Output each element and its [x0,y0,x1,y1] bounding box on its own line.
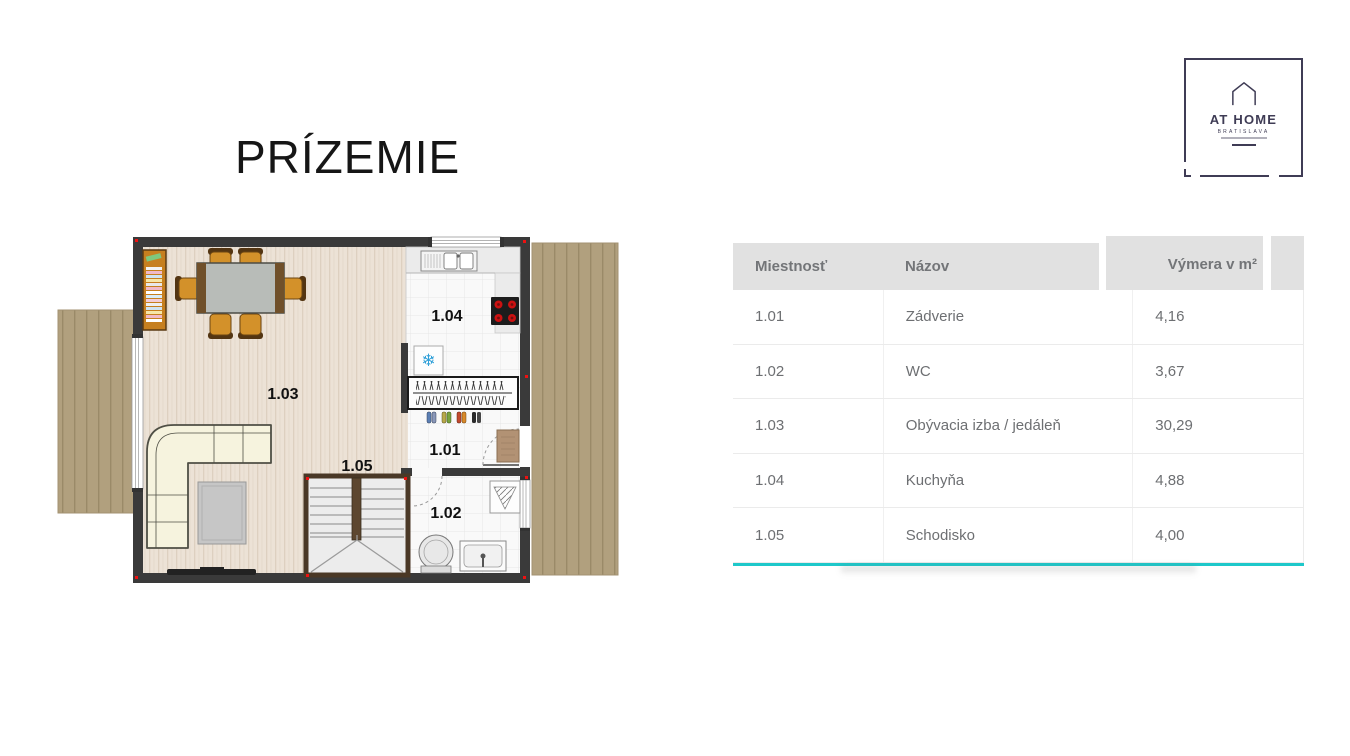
room-id-cell: 1.04 [733,472,883,489]
room-area-cell: 3,67 [1132,345,1303,399]
terrace-left [58,310,135,513]
snowflake-icon: ❄ [421,351,435,370]
doormat [497,430,519,462]
column-header-area: Výmera v m² [1106,236,1263,290]
stove [491,297,519,325]
header-block-left: Miestnosť Názov [733,243,1099,290]
logo: AT HOME BRATISLAVA [1184,58,1303,177]
room-name-cell: Obývacia izba / jedáleň [883,399,1133,453]
logo-border-gap [1269,175,1279,177]
interior-wall [401,343,408,413]
window-left [132,334,143,492]
dining-table [197,263,284,313]
logo-name: AT HOME [1186,112,1301,127]
room-id-cell: 1.01 [733,308,883,325]
table-row: 1.02 WC 3,67 [733,345,1303,400]
table-row: 1.03 Obývacia izba / jedáleň 30,29 [733,399,1303,454]
wc-corner-unit [490,481,520,513]
table-row: 1.04 Kuchyňa 4,88 [733,454,1303,509]
room-area-cell: 4,00 [1132,508,1303,562]
room-id-cell: 1.05 [733,527,883,544]
toilet [419,535,453,573]
wc-door-opening [412,468,442,476]
window-top [428,237,504,247]
room-area-cell: 4,88 [1132,454,1303,508]
table-row: 1.05 Schodisko 4,00 [733,508,1303,563]
table-body: 1.01 Zádverie 4,16 1.02 WC 3,67 1.03 Obý… [733,290,1304,563]
bookshelf [143,250,166,330]
table-header: Miestnosť Názov Výmera v m² [733,236,1304,290]
window-wc-right [520,477,530,531]
room-label-1-04: 1.04 [431,308,462,325]
room-area-cell: 30,29 [1132,399,1303,453]
header-block-spacer [1271,236,1304,290]
freezer: ❄ [414,346,443,375]
room-area-cell: 4,16 [1132,290,1303,344]
room-id-cell: 1.02 [733,363,883,380]
column-header-room: Miestnosť [755,243,827,290]
washbasin [460,541,506,571]
room-label-1-03: 1.03 [267,386,298,403]
room-label-1-01: 1.01 [429,442,460,459]
room-label-1-05: 1.05 [341,458,372,475]
room-name-cell: Kuchyňa [883,454,1133,508]
terrace-right [532,243,618,575]
staircase [306,476,408,575]
table-shadow [841,566,1195,575]
logo-subtitle: BRATISLAVA [1186,129,1301,135]
room-name-cell: Zádverie [883,290,1133,344]
floor-plan: ❄ [50,225,630,595]
logo-fineprint-line [1221,137,1267,139]
rooms-table: Miestnosť Názov Výmera v m² 1.01 Zádveri… [733,236,1304,575]
page-title: PRÍZEMIE [235,130,460,184]
logo-border-gap [1184,162,1186,169]
sink [421,251,477,271]
column-header-name: Názov [905,243,949,290]
logo-border-gap [1191,175,1200,177]
coat-rack [408,377,518,409]
room-name-cell: WC [883,345,1133,399]
room-id-cell: 1.03 [733,417,883,434]
room-name-cell: Schodisko [883,508,1133,562]
page: PRÍZEMIE AT HOME BRATISLAVA [0,0,1350,756]
house-icon [1228,80,1260,106]
rug [198,482,246,544]
room-label-1-02: 1.02 [430,505,461,522]
table-row: 1.01 Zádverie 4,16 [733,290,1303,345]
logo-rule [1232,144,1256,146]
